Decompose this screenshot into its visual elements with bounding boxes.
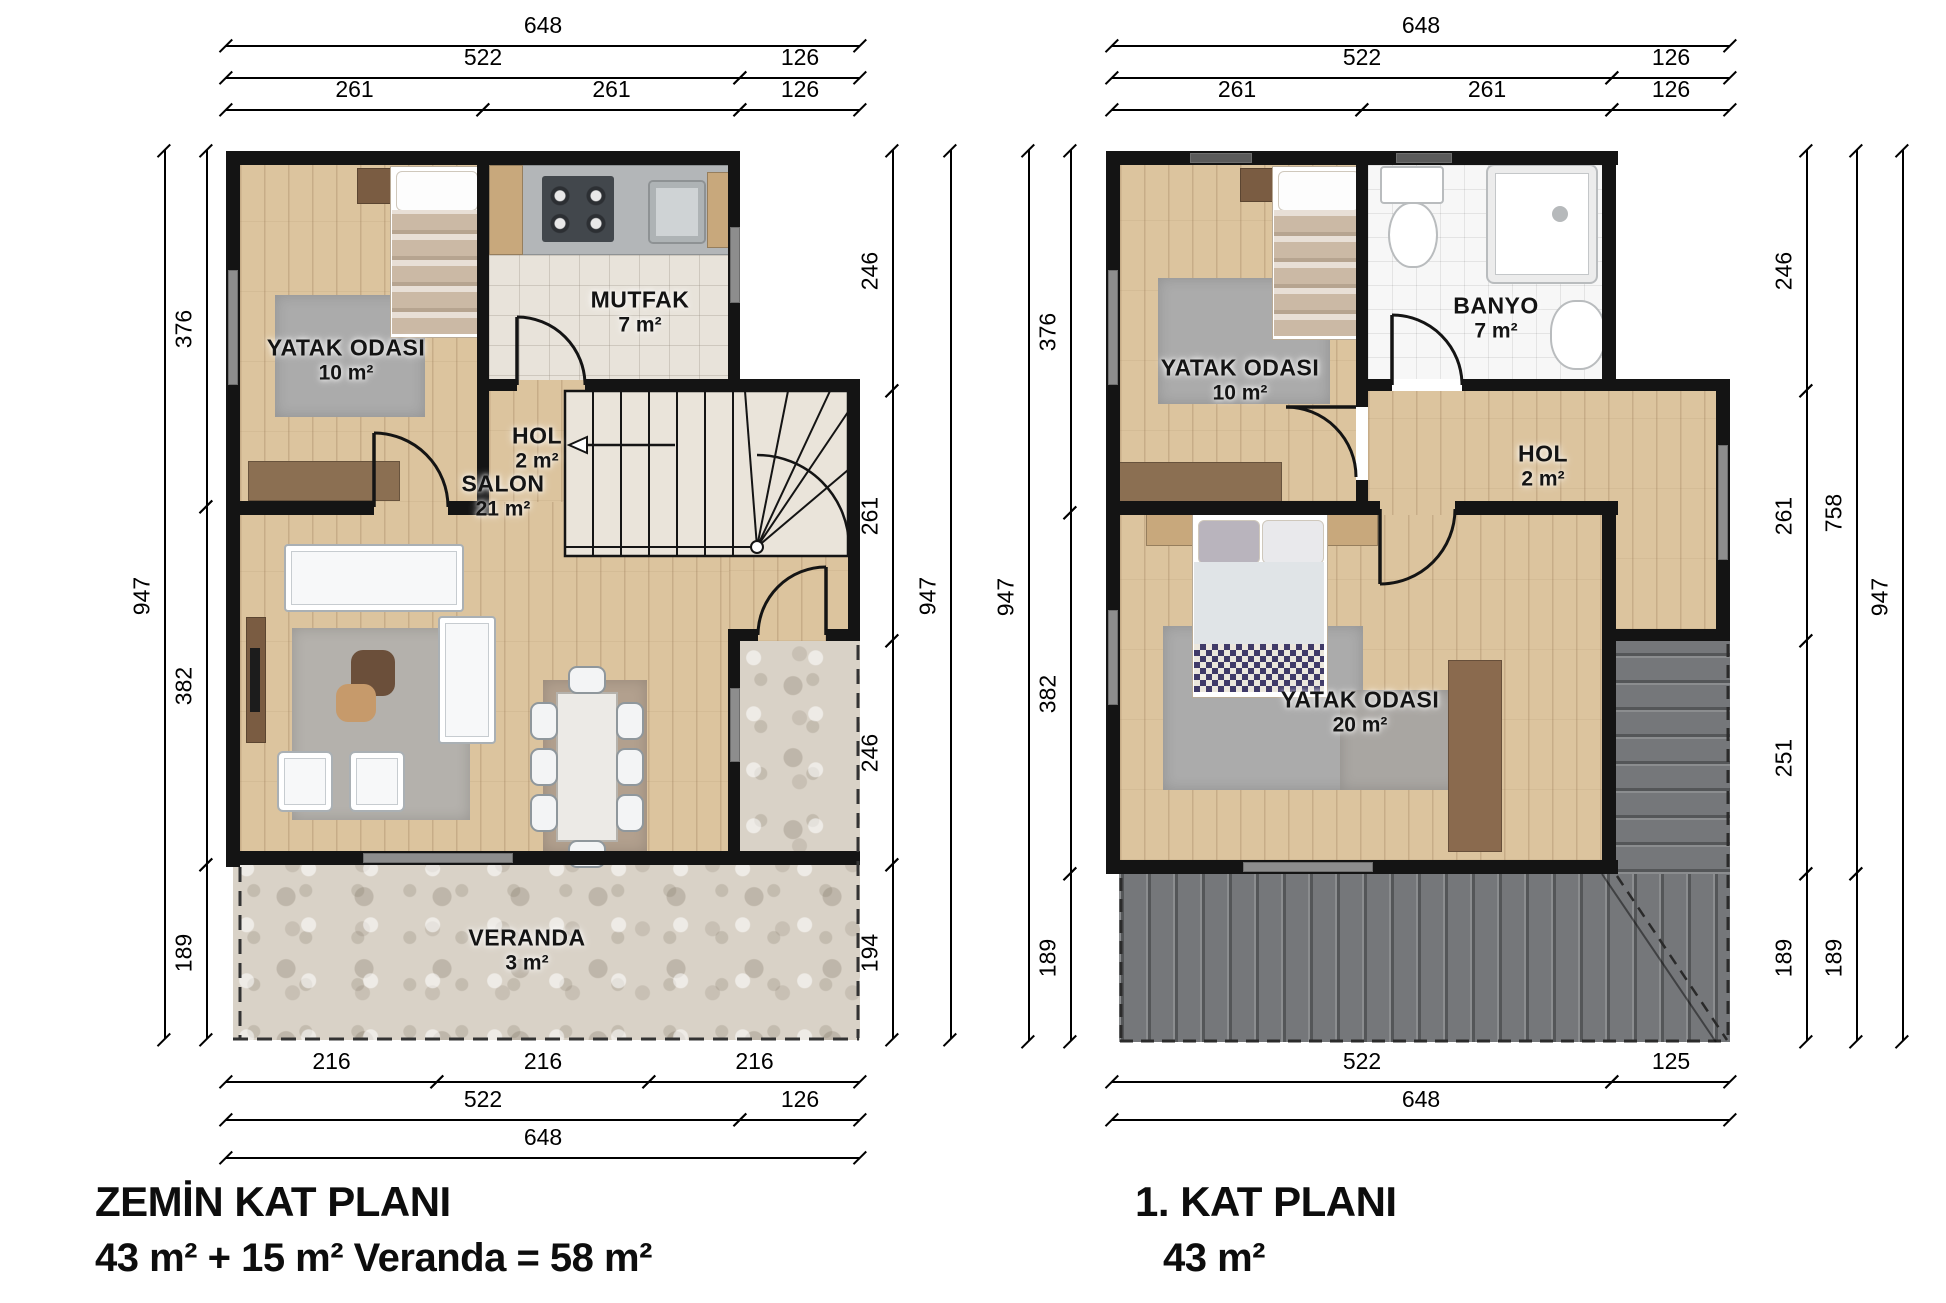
window	[228, 270, 238, 385]
dimension-line	[1112, 109, 1362, 111]
tv-screen	[250, 648, 260, 712]
dimension-label: 126	[781, 1086, 819, 1113]
plan1-bed-pillow	[396, 171, 478, 211]
room-name: HOL	[512, 423, 562, 450]
dimension-line	[1856, 150, 1858, 873]
plan2-bed-pillow	[1278, 171, 1360, 211]
shower-drain	[1552, 206, 1568, 222]
dimension-line	[164, 150, 166, 1039]
dimension-label: 189	[1035, 939, 1062, 977]
dimension-label: 382	[171, 667, 198, 705]
plan1-veranda-side-floor	[740, 641, 860, 852]
room-name: YATAK ODASI	[1281, 687, 1439, 714]
dimension-label: 251	[1771, 738, 1798, 776]
dimension-line	[1902, 150, 1904, 1041]
dimension-label: 648	[1402, 12, 1440, 39]
dimension-label: 126	[1652, 76, 1690, 103]
wall	[1602, 379, 1730, 391]
room-label-veranda: VERANDA3 m²	[468, 925, 585, 976]
room-label-yatak-odasi: YATAK ODASI20 m²	[1281, 687, 1439, 738]
wall	[477, 151, 489, 513]
plan2-title: 1. KAT PLANI 43 m²	[1135, 1178, 1397, 1281]
window	[730, 227, 740, 303]
room-label-hol: HOL2 m²	[512, 423, 562, 474]
dimension-label: 246	[857, 252, 884, 290]
dining-chair	[568, 666, 606, 694]
dimension-label: 126	[781, 76, 819, 103]
dimension-line	[740, 1119, 860, 1121]
dimension-label: 947	[129, 576, 156, 614]
plan1-bed-duvet	[392, 210, 480, 334]
dimension-label: 648	[1402, 1086, 1440, 1113]
floor-plan-sheet: { "titles": { "plan1": { "line1": "ZEMİN…	[0, 0, 1946, 1303]
dimension-line	[1112, 1119, 1730, 1121]
room-label-salon: SALON21 m²	[462, 471, 545, 522]
dimension-label: 261	[335, 76, 373, 103]
plan1-nightstand	[357, 168, 393, 204]
dimension-label: 947	[993, 577, 1020, 615]
double-bed-duvet	[1194, 562, 1324, 646]
dimension-label: 189	[1771, 939, 1798, 977]
room-name: VERANDA	[468, 925, 585, 952]
dimension-line	[1806, 640, 1808, 873]
dimension-label: 126	[781, 44, 819, 71]
dimension-label: 246	[857, 734, 884, 772]
room-label-yatak-odasi: YATAK ODASI10 m²	[267, 335, 425, 386]
dimension-line	[226, 45, 860, 47]
dimension-line	[206, 506, 208, 864]
dimension-label: 758	[1821, 493, 1848, 531]
toilet-tank	[1380, 166, 1444, 204]
window	[1108, 270, 1118, 385]
wall	[728, 379, 860, 391]
dimension-line	[206, 864, 208, 1039]
room-name: YATAK ODASI	[1161, 355, 1319, 382]
wall	[226, 851, 860, 865]
window	[1190, 153, 1252, 163]
dimension-line	[1028, 150, 1030, 1041]
dimension-line	[226, 1119, 740, 1121]
wall	[1356, 379, 1392, 391]
wall	[1462, 379, 1618, 391]
wall	[585, 379, 740, 391]
dimension-line	[1806, 873, 1808, 1041]
plan1-bedroom-dresser	[248, 461, 400, 501]
plan1-title: ZEMİN KAT PLANI 43 m² + 15 m² Veranda = …	[95, 1178, 652, 1281]
shower-tray	[1486, 164, 1598, 284]
dimension-line	[1806, 150, 1808, 390]
dimension-line	[1070, 150, 1072, 512]
plan1-title-name: ZEMİN KAT PLANI	[95, 1178, 652, 1226]
room-area: 21 m²	[462, 498, 545, 522]
room-area: 7 m²	[591, 314, 690, 338]
dimension-line	[1112, 77, 1612, 79]
dimension-line	[892, 864, 894, 1039]
dimension-line	[1612, 109, 1730, 111]
roof-side	[1616, 641, 1730, 874]
room-name: BANYO	[1453, 293, 1539, 320]
room-name: MUTFAK	[591, 287, 690, 314]
dimension-label: 189	[171, 933, 198, 971]
wall	[1602, 501, 1616, 874]
dimension-line	[892, 150, 894, 390]
dimension-line	[1070, 512, 1072, 873]
dimension-label: 947	[915, 576, 942, 614]
dimension-label: 194	[857, 933, 884, 971]
room-label-yatak-odasi: YATAK ODASI10 m²	[1161, 355, 1319, 406]
dining-chair	[530, 748, 558, 786]
double-bed-pillow	[1198, 520, 1260, 564]
room-label-banyo: BANYO7 m²	[1453, 293, 1539, 344]
window	[363, 853, 513, 863]
window	[730, 688, 740, 762]
wall	[1602, 151, 1616, 391]
dimension-label: 261	[1468, 76, 1506, 103]
dimension-line	[1112, 1081, 1612, 1083]
dimension-line	[226, 1157, 860, 1159]
dining-chair	[530, 794, 558, 832]
dimension-label: 376	[1035, 313, 1062, 351]
dimension-label: 261	[1771, 497, 1798, 535]
room-name: SALON	[462, 471, 545, 498]
dimension-label: 246	[1771, 252, 1798, 290]
kitchen-sink	[648, 180, 706, 244]
dimension-label: 216	[524, 1048, 562, 1075]
wall	[1356, 151, 1368, 407]
dimension-line	[1112, 45, 1730, 47]
room-name: YATAK ODASI	[267, 335, 425, 362]
dimension-label: 376	[171, 310, 198, 348]
plan2-bedroom10-dresser	[1118, 462, 1282, 502]
room-area: 2 m²	[1518, 468, 1568, 492]
bathroom-sink	[1550, 300, 1606, 370]
room-name: HOL	[1518, 441, 1568, 468]
room-area: 20 m²	[1281, 714, 1439, 738]
dining-chair	[530, 702, 558, 740]
wall	[1455, 501, 1618, 515]
dimension-line	[206, 150, 208, 506]
plan1-title-area: 43 m² + 15 m² Veranda = 58 m²	[95, 1236, 652, 1281]
plan2-bed-duvet	[1274, 210, 1362, 336]
dining-chair	[616, 794, 644, 832]
dimension-label: 522	[464, 1086, 502, 1113]
dimension-label: 216	[312, 1048, 350, 1075]
window	[1243, 862, 1373, 872]
window	[1108, 610, 1118, 705]
plan2-title-area: 43 m²	[1135, 1236, 1397, 1281]
dimension-line	[226, 77, 740, 79]
salon-sofa-small	[438, 616, 496, 744]
plan2-bedroom20-bench	[1448, 660, 1502, 852]
dimension-line	[226, 1081, 437, 1083]
dimension-label: 522	[1343, 1048, 1381, 1075]
dimension-label: 261	[1218, 76, 1256, 103]
dimension-line	[892, 390, 894, 640]
plan2-nightstand	[1240, 168, 1274, 202]
dining-chair	[616, 748, 644, 786]
dimension-line	[1362, 109, 1612, 111]
coffee-table-light	[336, 684, 376, 722]
dimension-line	[1856, 873, 1858, 1041]
wall	[826, 629, 860, 641]
cutting-board	[707, 172, 729, 248]
wall	[1106, 501, 1380, 515]
wall	[1602, 629, 1730, 641]
dimension-label: 126	[1652, 44, 1690, 71]
roof-lower	[1119, 874, 1730, 1042]
room-area: 10 m²	[267, 362, 425, 386]
stove-cooktop	[542, 176, 614, 242]
dimension-label: 261	[592, 76, 630, 103]
dimension-line	[892, 640, 894, 864]
dimension-label: 648	[524, 12, 562, 39]
dimension-line	[740, 109, 860, 111]
dimension-label: 125	[1652, 1048, 1690, 1075]
dimension-line	[1612, 1081, 1730, 1083]
dimension-label: 216	[735, 1048, 773, 1075]
dimension-line	[483, 109, 740, 111]
wall	[477, 379, 517, 391]
wall	[226, 501, 374, 515]
dimension-label: 947	[1867, 577, 1894, 615]
room-area: 10 m²	[1161, 382, 1319, 406]
room-label-hol: HOL2 m²	[1518, 441, 1568, 492]
dimension-line	[1070, 873, 1072, 1041]
dimension-line	[437, 1081, 649, 1083]
window	[1396, 153, 1452, 163]
dimension-label: 648	[524, 1124, 562, 1151]
dimension-label: 382	[1035, 674, 1062, 712]
dimension-line	[226, 109, 483, 111]
dining-chair	[616, 702, 644, 740]
room-label-mutfak: MUTFAK7 m²	[591, 287, 690, 338]
checkered-blanket	[1194, 644, 1324, 692]
plan2-title-name: 1. KAT PLANI	[1135, 1178, 1397, 1226]
dimension-line	[649, 1081, 860, 1083]
dimension-label: 261	[857, 497, 884, 535]
salon-armchair-2	[349, 751, 405, 812]
dining-table	[556, 692, 618, 842]
salon-sofa-large	[284, 544, 464, 612]
dimension-line	[950, 150, 952, 1039]
kitchen-counter-wood-end	[489, 165, 523, 255]
salon-armchair-1	[277, 751, 333, 812]
toilet-bowl	[1388, 202, 1438, 268]
window	[1718, 445, 1728, 560]
double-bed-pillow	[1262, 520, 1324, 564]
dimension-label: 189	[1821, 939, 1848, 977]
dimension-line	[1806, 390, 1808, 640]
room-area: 7 m²	[1453, 320, 1539, 344]
dimension-label: 522	[1343, 44, 1381, 71]
dimension-label: 522	[464, 44, 502, 71]
room-area: 3 m²	[468, 952, 585, 976]
